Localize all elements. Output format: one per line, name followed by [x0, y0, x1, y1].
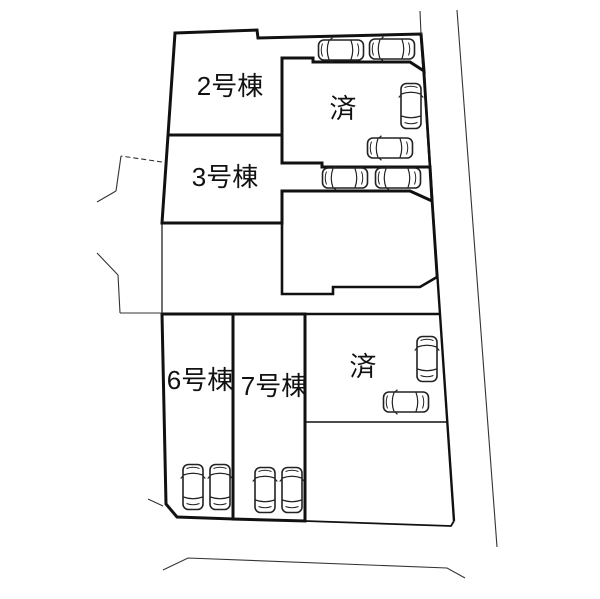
site-bottom-boundary [305, 521, 454, 526]
neighbor-boundary-line [121, 156, 162, 162]
site-plan: 2号棟 3号棟 6号棟 7号棟 済 済 [0, 0, 600, 599]
car-icon [376, 166, 421, 191]
neighbor-boundary-line [148, 499, 163, 506]
car-icon [253, 468, 278, 513]
car-icon [415, 337, 440, 382]
car-icon [370, 37, 415, 62]
car-icon [399, 84, 424, 129]
neighbor-boundary-line [97, 253, 118, 275]
car-icon [384, 390, 429, 415]
car-icon [323, 166, 368, 191]
plot-3-label: 3号棟 [192, 162, 258, 192]
plot-6-label: 6号棟 [167, 365, 233, 395]
car-icon [368, 136, 413, 161]
car-icon [319, 38, 364, 63]
vacant-lot-middle [282, 191, 437, 294]
plot-2-label: 2号棟 [197, 71, 263, 101]
road-edge-right-near [420, 11, 421, 34]
plot-7-label: 7号棟 [241, 371, 307, 401]
neighbor-boundary-line [116, 156, 121, 191]
road-edge-bottom [163, 558, 465, 578]
sold-top-label: 済 [330, 94, 357, 124]
sold-bottom-label: 済 [350, 352, 377, 382]
car-icon [208, 465, 233, 510]
road-edge-right-far [457, 10, 497, 547]
car-icon [280, 468, 305, 513]
car-icon [181, 465, 206, 510]
neighbor-boundary-line [118, 275, 120, 313]
site-right-boundary [421, 34, 454, 521]
site-plan-svg: 2号棟 3号棟 6号棟 7号棟 済 済 [0, 0, 600, 599]
neighbor-boundary-line [97, 191, 116, 202]
